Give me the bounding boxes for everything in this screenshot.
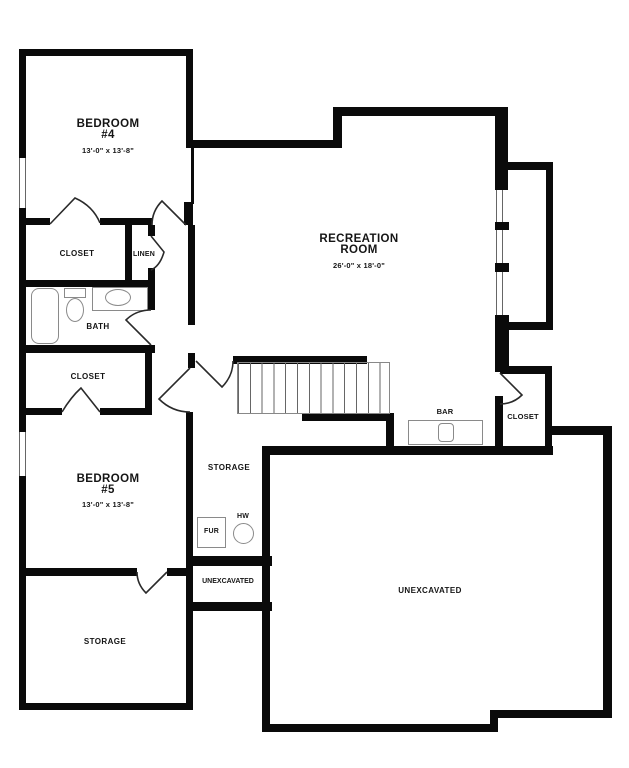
- label-unexcavated-large: UNEXCAVATED: [370, 586, 490, 595]
- door-storage-lower: [137, 572, 167, 593]
- door-bedroom4: [152, 201, 186, 225]
- room-label-closet-bedroom5: CLOSET: [48, 372, 128, 381]
- room-label-recreation: RECREATIONROOM: [299, 234, 419, 256]
- room-label-storage-hall: STORAGE: [189, 463, 269, 472]
- room-label-line: ROOM: [340, 244, 377, 256]
- room-label-bedroom4: BEDROOM#4: [48, 119, 168, 141]
- room-label-bedroom5: BEDROOM#5: [48, 474, 168, 496]
- doors-layer: [0, 0, 629, 768]
- room-label-storage-lower: STORAGE: [65, 637, 145, 646]
- door-closet-bedroom4: [50, 198, 100, 224]
- room-dims-bedroom4: 13'-0" x 13'-8": [48, 146, 168, 155]
- room-label-closet-rec: CLOSET: [494, 412, 552, 421]
- label-furnace: FUR: [197, 528, 226, 535]
- room-label-line: #4: [101, 129, 115, 141]
- room-label-bath: BATH: [58, 322, 138, 331]
- room-label-closet-bedroom4: CLOSET: [37, 249, 117, 258]
- door-stairs: [196, 361, 233, 387]
- door-closet-rec: [500, 373, 522, 404]
- door-bedroom5: [159, 368, 190, 412]
- room-dims-bedroom5: 13'-0" x 13'-8": [48, 500, 168, 509]
- room-dims-recreation: 26'-0" x 18'-0": [299, 261, 419, 270]
- label-water-heater: HW: [223, 513, 263, 520]
- label-bar: BAR: [415, 407, 475, 416]
- room-label-line: #5: [101, 484, 115, 496]
- room-label-linen: LINEN: [122, 251, 166, 258]
- floor-plan: BEDROOM#4 13'-0" x 13'-8" RECREATIONROOM…: [0, 0, 629, 768]
- label-unexcavated-small: UNEXCAVATED: [191, 578, 265, 585]
- door-closet-bedroom5: [62, 388, 100, 412]
